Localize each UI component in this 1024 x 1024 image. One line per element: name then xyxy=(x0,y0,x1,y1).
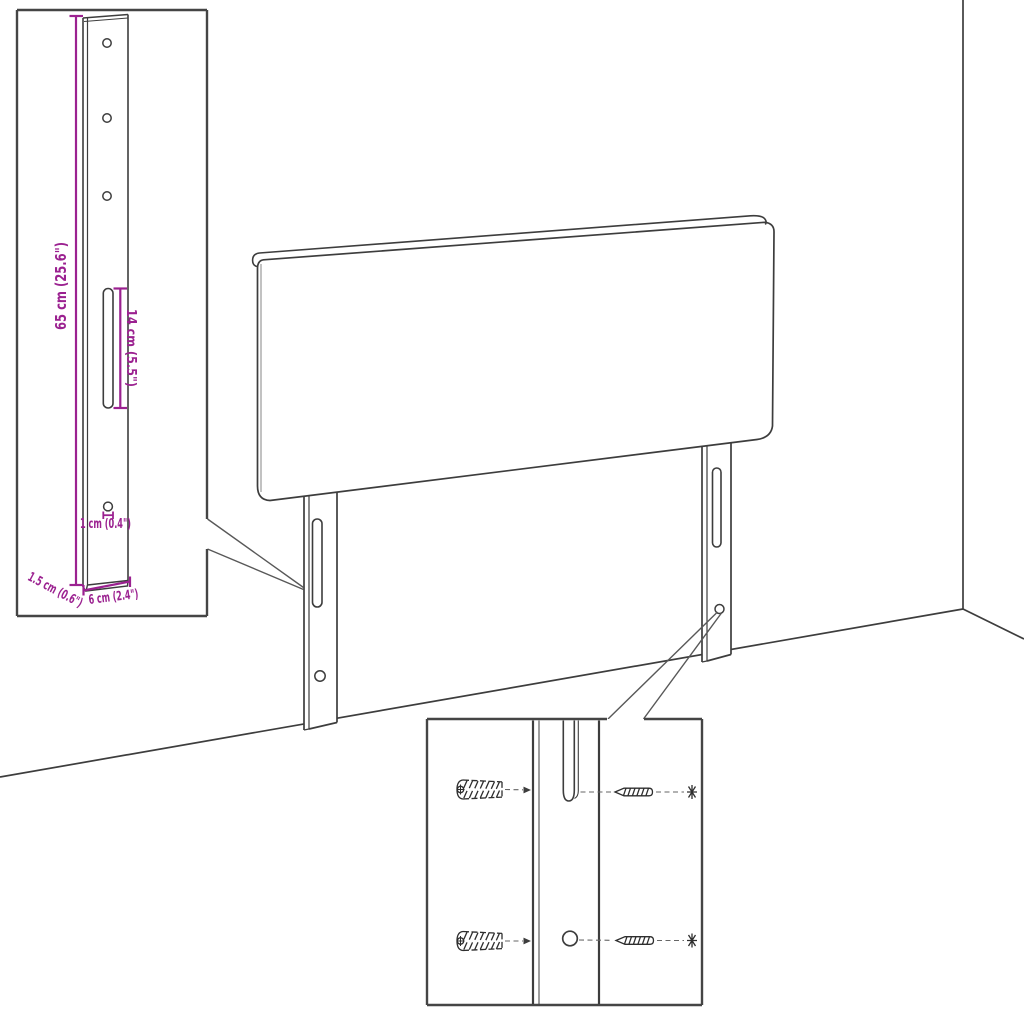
leg-dimension-inset: 65 cm (25.6") 14 cm (5.5") 1 cm (0.4") 6… xyxy=(17,10,207,616)
hole-diameter-dimension-label: 1 cm (0.4") xyxy=(80,517,131,532)
slot-length-dimension-label: 14 cm (5.5") xyxy=(123,309,139,387)
mounting-hardware-inset xyxy=(427,719,702,1005)
height-dimension-label: 65 cm (25.6") xyxy=(52,242,70,330)
callout-lines xyxy=(208,519,722,719)
headboard-dimension-diagram: 65 cm (25.6") 14 cm (5.5") 1 cm (0.4") 6… xyxy=(0,0,1024,1024)
floor-line-right xyxy=(963,609,1024,639)
screw-burst-icon xyxy=(687,785,697,799)
screw-burst-icon xyxy=(687,934,697,948)
left-inset-callout-upper xyxy=(208,519,304,588)
left-inset-callout-lower xyxy=(208,549,304,590)
headboard-right-leg xyxy=(702,443,731,662)
bottom-inset-callout-left xyxy=(608,612,718,719)
bottom-inset-callout-right xyxy=(644,613,722,719)
diagram-canvas: 65 cm (25.6") 14 cm (5.5") 1 cm (0.4") 6… xyxy=(0,0,1024,1024)
headboard-left-leg xyxy=(304,492,337,730)
headboard-panel xyxy=(253,216,774,501)
